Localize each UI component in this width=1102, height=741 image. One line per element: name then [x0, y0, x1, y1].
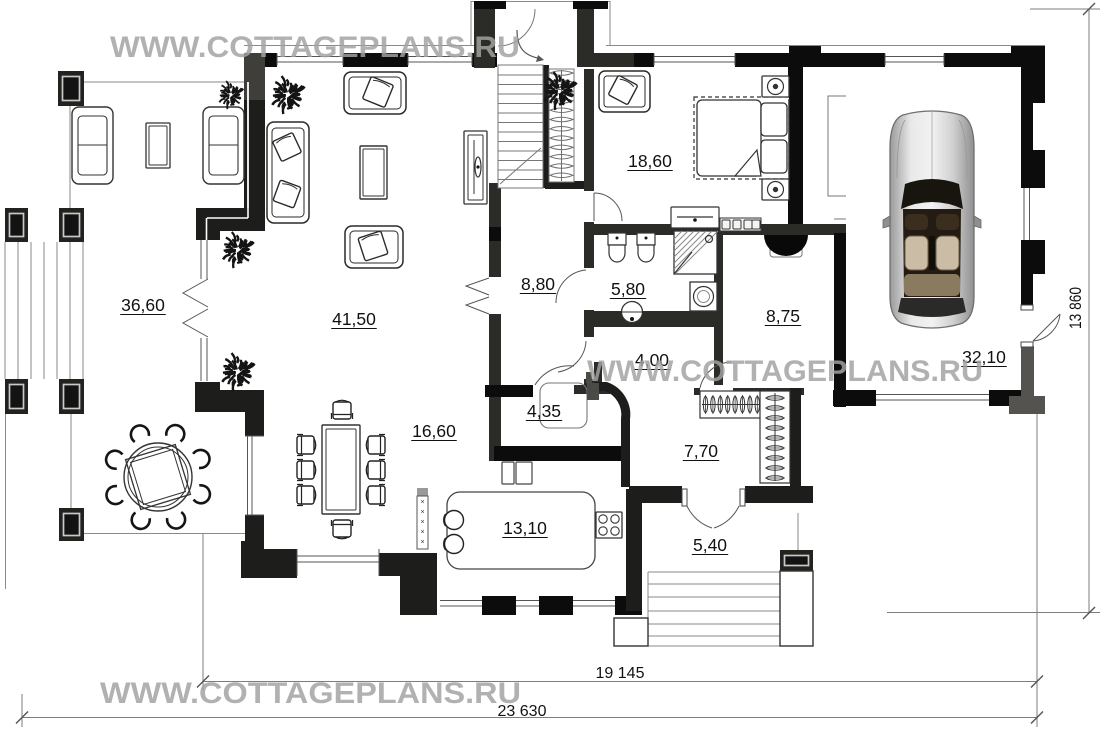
svg-text:×: × [420, 529, 424, 536]
svg-text:×: × [420, 519, 424, 526]
svg-text:18,60: 18,60 [628, 151, 672, 171]
svg-text:5,40: 5,40 [693, 535, 727, 555]
svg-text:5,80: 5,80 [611, 279, 645, 299]
svg-text:8,75: 8,75 [766, 306, 800, 326]
svg-text:7,70: 7,70 [684, 441, 718, 461]
svg-text:36,60: 36,60 [121, 295, 165, 315]
svg-text:13,10: 13,10 [503, 518, 547, 538]
svg-text:8,80: 8,80 [521, 274, 555, 294]
svg-text:19 145: 19 145 [596, 665, 645, 682]
svg-text:WWW.COTTAGEPLANS.RU: WWW.COTTAGEPLANS.RU [110, 31, 520, 64]
svg-text:×: × [420, 499, 424, 506]
svg-text:×: × [420, 539, 424, 546]
svg-text:4,35: 4,35 [527, 401, 561, 421]
svg-text:16,60: 16,60 [412, 421, 456, 441]
svg-text:×: × [420, 509, 424, 516]
svg-text:13 860: 13 860 [1066, 287, 1085, 329]
svg-text:WWW.COTTAGEPLANS.RU: WWW.COTTAGEPLANS.RU [100, 677, 521, 710]
svg-text:WWW.COTTAGEPLANS.RU: WWW.COTTAGEPLANS.RU [587, 355, 983, 388]
svg-text:41,50: 41,50 [332, 309, 376, 329]
